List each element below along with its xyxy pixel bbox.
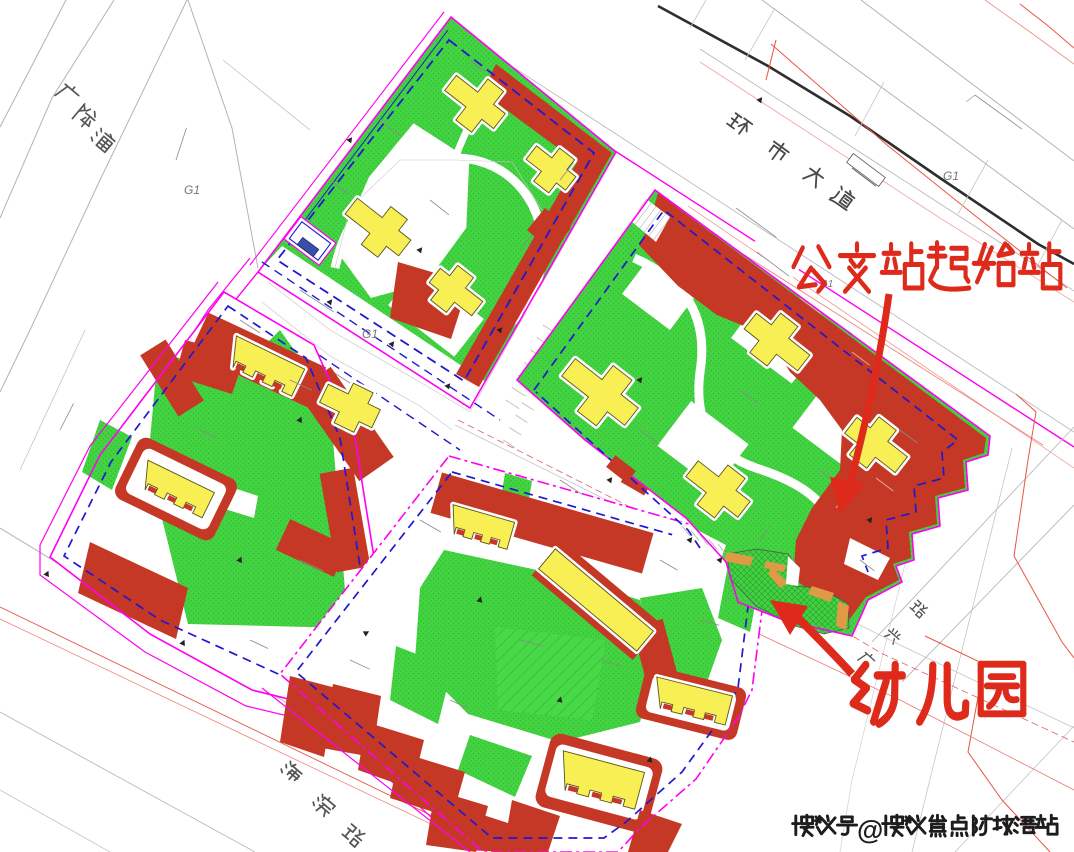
- svg-text:G1: G1: [362, 327, 378, 341]
- svg-text:G1: G1: [943, 169, 959, 183]
- svg-text:G1: G1: [184, 183, 200, 197]
- svg-text:@: @: [857, 815, 883, 845]
